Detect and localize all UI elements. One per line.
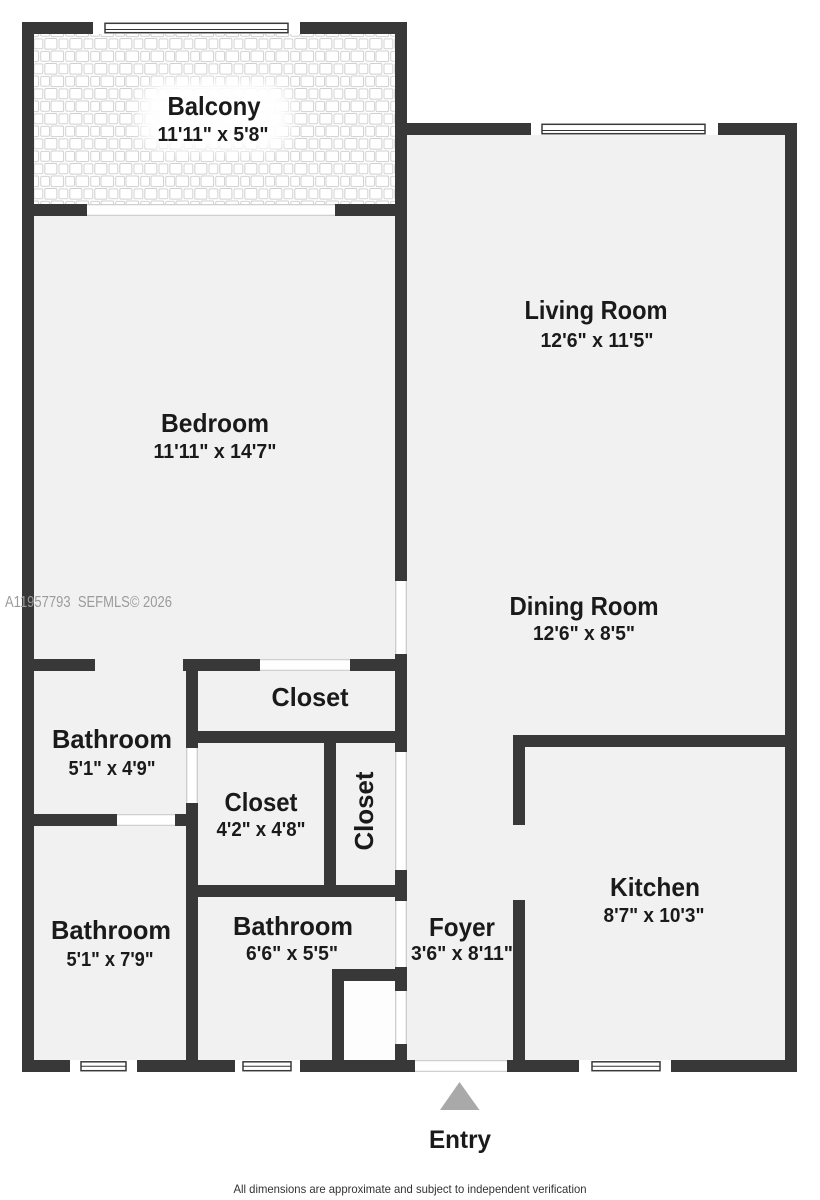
svg-text:Entry: Entry	[429, 1126, 491, 1154]
svg-text:12'6" x 8'5": 12'6" x 8'5"	[533, 623, 635, 645]
svg-text:11'11" x 5'8": 11'11" x 5'8"	[158, 124, 269, 146]
svg-text:12'6" x 11'5": 12'6" x 11'5"	[541, 330, 654, 352]
svg-text:Bathroom: Bathroom	[52, 724, 172, 754]
svg-text:4'2" x 4'8": 4'2" x 4'8"	[217, 819, 306, 841]
svg-text:Bathroom: Bathroom	[51, 915, 171, 945]
svg-text:5'1" x 4'9": 5'1" x 4'9"	[69, 758, 156, 780]
svg-text:6'6" x 5'5": 6'6" x 5'5"	[246, 943, 338, 965]
svg-text:All dimensions are approximate: All dimensions are approximate and subje…	[234, 1182, 587, 1196]
svg-text:Closet: Closet	[272, 682, 349, 712]
svg-text:Balcony: Balcony	[168, 91, 261, 121]
svg-text:Dining Room: Dining Room	[510, 591, 659, 621]
svg-text:A11957793 SEFMLS© 2026: A11957793 SEFMLS© 2026	[5, 594, 172, 611]
svg-text:Bathroom: Bathroom	[233, 911, 353, 941]
svg-text:Kitchen: Kitchen	[610, 872, 700, 902]
svg-text:8'7" x 10'3": 8'7" x 10'3"	[604, 905, 705, 927]
svg-text:Closet: Closet	[349, 771, 379, 850]
svg-text:11'11" x 14'7": 11'11" x 14'7"	[154, 441, 277, 463]
svg-text:5'1" x 7'9": 5'1" x 7'9"	[67, 949, 154, 971]
svg-text:3'6" x 8'11": 3'6" x 8'11"	[411, 943, 513, 965]
svg-text:Bedroom: Bedroom	[161, 408, 269, 438]
svg-text:Closet: Closet	[225, 787, 298, 817]
svg-text:Foyer: Foyer	[429, 912, 495, 942]
svg-text:Living Room: Living Room	[525, 295, 668, 325]
